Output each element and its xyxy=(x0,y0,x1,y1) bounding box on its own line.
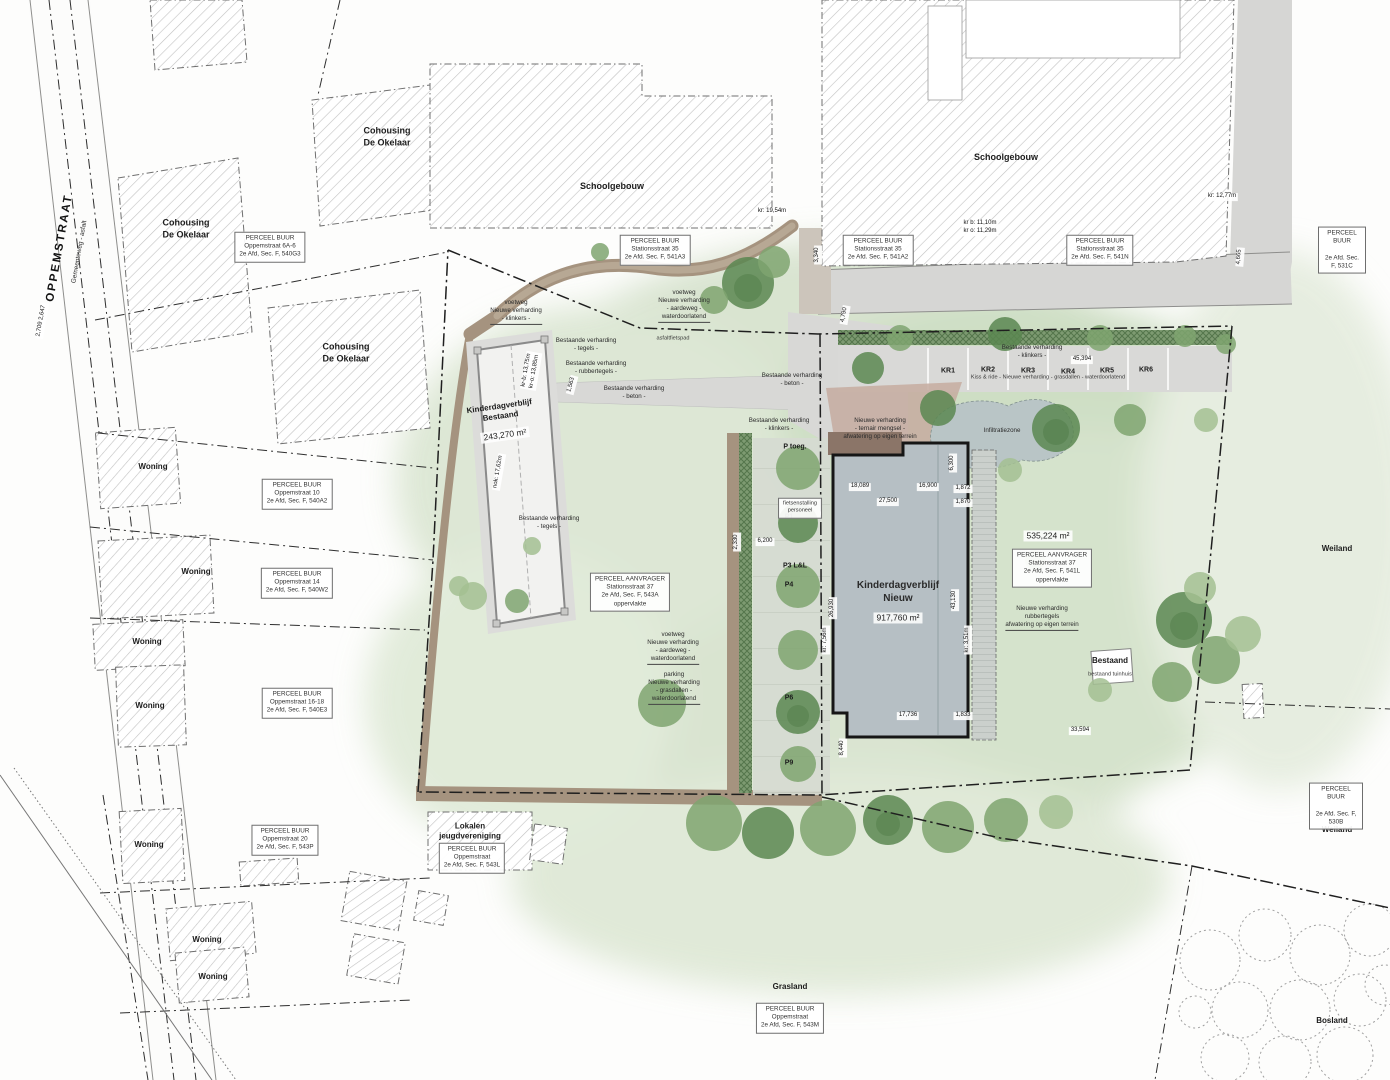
building-label-woning-6: Woning xyxy=(192,935,221,945)
building-label-woning-2: Woning xyxy=(181,567,210,577)
parcel-buur-531c: PERCEEL BUUR 2e Afd. Sec. F, 531C xyxy=(1318,227,1366,274)
parcel-buur-540a2: PERCEEL BUUR Oppemstraat 10 2e Afd, Sec.… xyxy=(262,479,333,510)
parcel-buur-530b: PERCEEL BUUR 2e Afd. Sec. F, 530B xyxy=(1309,783,1363,830)
building-label-cohousing-3: Cohousing De Okelaar xyxy=(322,341,369,364)
terrain-weiland-1: Weiland xyxy=(1322,544,1353,554)
dim-6300: 6,300 xyxy=(949,453,957,472)
building-label-woning-5: Woning xyxy=(134,840,163,850)
dim-1833: 1,833 xyxy=(953,712,972,720)
dim-16900: 16,900 xyxy=(917,483,939,491)
parking-kr1: KR1 xyxy=(941,366,955,375)
dim-4665: 4,665 xyxy=(1235,247,1244,267)
bosland-trees xyxy=(1179,904,1390,1080)
parcel-buur-540g3: PERCEEL BUUR Oppemstraat 6A-6 2e Afd, Se… xyxy=(234,232,305,263)
dim-kr1954: kr: 19,54m xyxy=(756,208,788,216)
parking-kr4: KR4 xyxy=(1061,367,1075,376)
terrain-grasland: Grasland xyxy=(773,982,808,992)
paving-best-klinkers-2: Bestaande verharding - klinkers - xyxy=(749,417,810,433)
parcel-buur-543l: PERCEEL BUUR Oppemstraat 2e Afd, Sec. F,… xyxy=(439,843,505,874)
paving-parking-grasdallen: parking Nieuwe verharding - grasdallen -… xyxy=(648,671,700,705)
dim-18089: 18,089 xyxy=(849,483,871,491)
paving-best-tegels-1: Bestaande verharding - tegels - xyxy=(556,337,617,353)
paving-voetweg-aardeweg-2: voetweg Nieuwe verharding - aardeweg - w… xyxy=(647,631,699,665)
dim-1870: 1,870 xyxy=(953,499,972,507)
paving-ternair: Nieuwe verharding - ternair mengsel - af… xyxy=(843,417,916,441)
parcel-buur-540e3: PERCEEL BUUR Oppemstraat 16-18 2e Afd, S… xyxy=(262,688,333,719)
site-area: 535,224 m² xyxy=(1024,530,1073,541)
dim-27500: 27,500 xyxy=(877,498,899,506)
paving-voetweg-klinkers: voetweg Nieuwe verharding - klinkers - xyxy=(490,299,542,325)
parking-p-toeg: P toeg. xyxy=(783,442,806,451)
site-plan: OPPEMSTRAAT Gemeenteweg - asfalt 2,709 2… xyxy=(0,0,1390,1080)
paving-best-beton-2: Bestaande verharding - beton - xyxy=(762,372,823,388)
parking-kr5: KR5 xyxy=(1100,366,1114,375)
parking-p9: P9 xyxy=(785,758,794,767)
dim-3340: 3,340 xyxy=(814,245,822,264)
dim-33594: 33,594 xyxy=(1069,727,1091,735)
parcel-aanvrager-541l: PERCEEL AANVRAGER Stationsstraat 37 2e A… xyxy=(1012,549,1092,588)
paving-best-tegels-2: Bestaande verharding - tegels - xyxy=(519,515,580,531)
parcel-buur-541n: PERCEEL BUUR Stationsstraat 35 2e Afd. S… xyxy=(1066,235,1133,266)
parking-fietsenstalling: fietsenstalling personeel xyxy=(778,498,822,519)
dim-1872: 1,872 xyxy=(953,485,972,493)
parking-p6: P6 xyxy=(785,693,794,702)
paving-best-beton-1: Bestaande verharding - beton - xyxy=(604,385,665,401)
dim-kr1277: kr: 12,77m xyxy=(1206,193,1238,201)
parcel-buur-543m: PERCEEL BUUR Oppemstraat 2e Afd, Sec. F,… xyxy=(756,1003,824,1034)
parcel-buur-540w2: PERCEEL BUUR Oppemstraat 14 2e Afd, Sec.… xyxy=(261,568,333,599)
dim-43130: 43,130 xyxy=(951,589,959,611)
building-label-woning-1: Woning xyxy=(138,462,167,472)
terrain-bosland: Bosland xyxy=(1316,1016,1348,1026)
building-label-cohousing-1: Cohousing De Okelaar xyxy=(162,217,209,240)
kdv-nieuw-area: 917,760 m² xyxy=(874,612,923,623)
building-label-woning-4: Woning xyxy=(135,701,164,711)
dim-krb1110: kr b: 11,10m kr o: 11,29m xyxy=(962,220,999,236)
building-label-school-2: Schoolgebouw xyxy=(974,152,1038,164)
parcel-buur-541a2: PERCEEL BUUR Stationsstraat 35 2e Afd. S… xyxy=(843,235,914,266)
dim-45394: 45,394 xyxy=(1071,356,1093,364)
building-label-school-1: Schoolgebouw xyxy=(580,181,644,193)
dim-6200: 6,200 xyxy=(755,538,774,546)
parking-kr6: KR6 xyxy=(1139,365,1153,374)
paving-infiltratiezone: Infiltratiezone xyxy=(984,427,1021,435)
parking-p4: P4 xyxy=(785,580,794,589)
parcel-buur-543p: PERCEEL BUUR Oppemstraat 20 2e Afd, Sec.… xyxy=(251,825,318,856)
parking-kr2: KR2 xyxy=(981,365,995,374)
paving-asfaltfietspad: asfaltfietspad xyxy=(657,335,690,342)
dim-2330: 2,330 xyxy=(733,532,741,551)
dim-8440: 8,440 xyxy=(839,738,847,757)
building-label-woning-3: Woning xyxy=(132,637,161,647)
parcel-buur-541a3: PERCEEL BUUR Stationsstraat 35 2e Afd. S… xyxy=(620,235,691,266)
paving-rubbertegels-nieuw: Nieuwe verharding rubbertegels afwaterin… xyxy=(1005,605,1078,631)
building-label-lokalen: Lokalen jeugdvereniging xyxy=(439,822,501,843)
dim-kr351: kr: 3,51m xyxy=(964,625,972,654)
site-plan-graphics xyxy=(0,0,1390,1080)
dim-26930: 26,930 xyxy=(829,597,837,619)
building-label-woning-7: Woning xyxy=(198,972,227,982)
paving-best-rubbertegels: Bestaande verharding - rubbertegels - xyxy=(566,360,627,376)
dim-17736: 17,736 xyxy=(897,712,919,720)
paving-best-klinkers-1: Bestaande verharding - klinkers - xyxy=(1002,344,1063,360)
parcel-aanvrager-543a: PERCEEL AANVRAGER Stationsstraat 37 2e A… xyxy=(590,573,670,612)
building-label-bestaand: Bestaand xyxy=(1092,656,1128,666)
dim-kr756: kr: 7,56m xyxy=(822,625,830,654)
building-label-cohousing-2: Cohousing De Okelaar xyxy=(363,125,410,148)
building-label-bestaand-sub: bestaand tuinhuis xyxy=(1088,671,1132,678)
parking-kr3: KR3 xyxy=(1021,366,1035,375)
paving-voetweg-aardeweg-1: voetweg Nieuwe verharding - aardeweg - w… xyxy=(658,289,710,323)
parking-p3: P3 L&L xyxy=(783,561,807,570)
building-label-kdv-nieuw: Kinderdagverblijf Nieuw xyxy=(857,579,939,605)
